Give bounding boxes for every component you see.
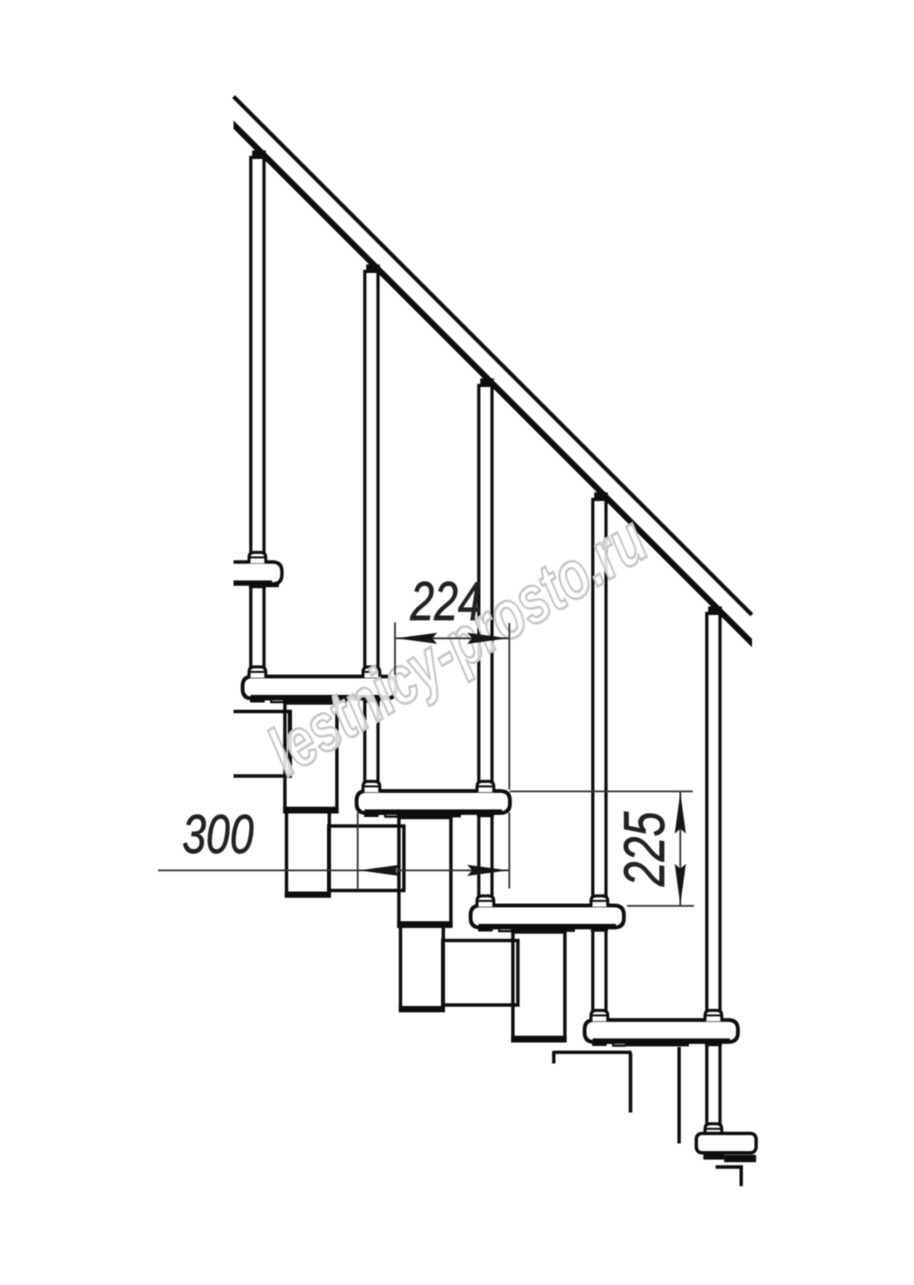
svg-text:224: 224 [409, 571, 481, 632]
svg-text:300: 300 [182, 804, 254, 865]
svg-text:225: 225 [612, 811, 677, 887]
